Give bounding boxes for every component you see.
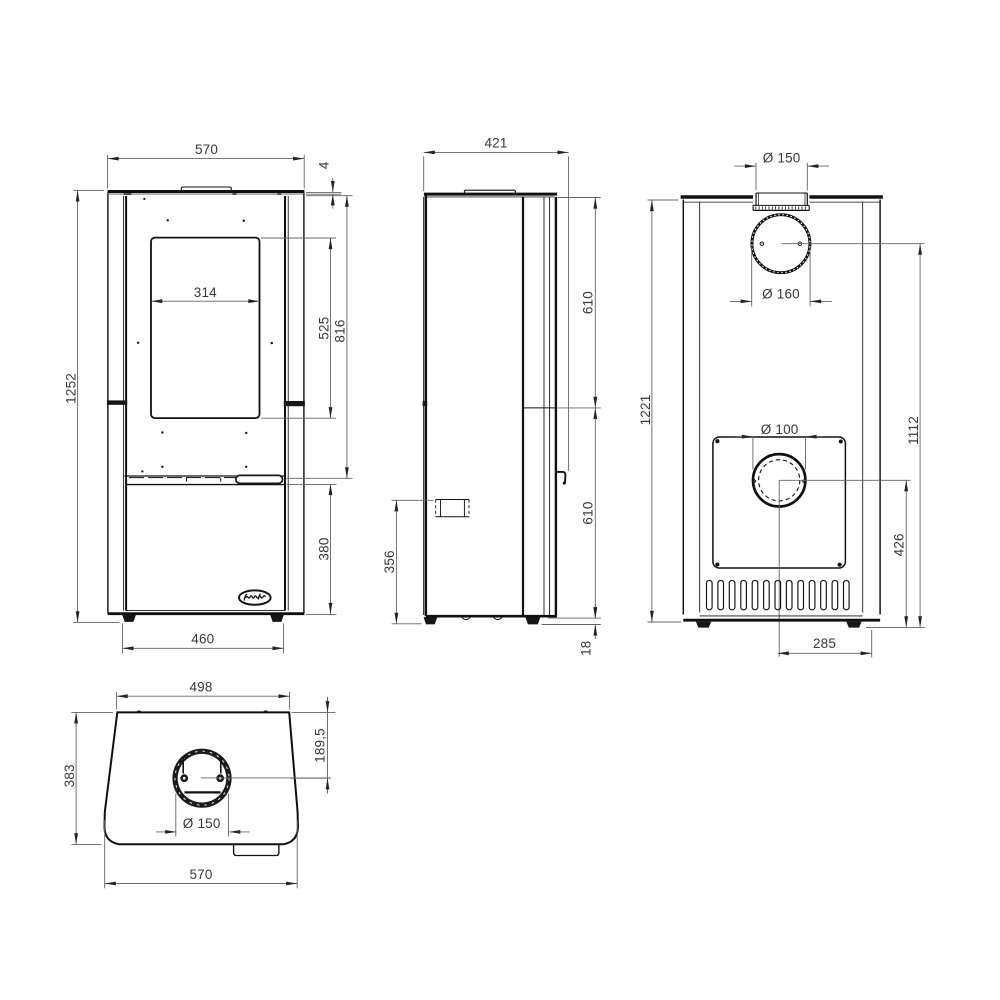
svg-text:4: 4 <box>317 161 332 169</box>
svg-text:Ø 150: Ø 150 <box>763 151 801 166</box>
svg-text:Ø 160: Ø 160 <box>762 286 800 301</box>
svg-text:610: 610 <box>580 501 595 524</box>
svg-text:525: 525 <box>316 317 331 340</box>
svg-text:421: 421 <box>484 136 507 151</box>
svg-text:1252: 1252 <box>64 373 79 404</box>
svg-text:570: 570 <box>189 867 212 882</box>
svg-text:570: 570 <box>195 142 218 157</box>
svg-text:460: 460 <box>191 631 214 646</box>
svg-text:426: 426 <box>892 533 907 556</box>
svg-text:610: 610 <box>580 291 595 314</box>
svg-text:1112: 1112 <box>906 416 921 445</box>
svg-text:1221: 1221 <box>638 395 653 426</box>
svg-text:189,5: 189,5 <box>313 728 328 763</box>
svg-text:498: 498 <box>189 680 212 695</box>
svg-text:285: 285 <box>813 636 836 651</box>
svg-text:380: 380 <box>316 537 331 560</box>
svg-text:Ø 100: Ø 100 <box>761 422 799 437</box>
svg-text:356: 356 <box>382 550 397 573</box>
svg-text:Ø 150: Ø 150 <box>183 816 221 831</box>
svg-text:18: 18 <box>579 640 594 655</box>
svg-text:816: 816 <box>333 319 348 342</box>
svg-text:314: 314 <box>194 285 217 300</box>
svg-text:383: 383 <box>62 764 77 787</box>
